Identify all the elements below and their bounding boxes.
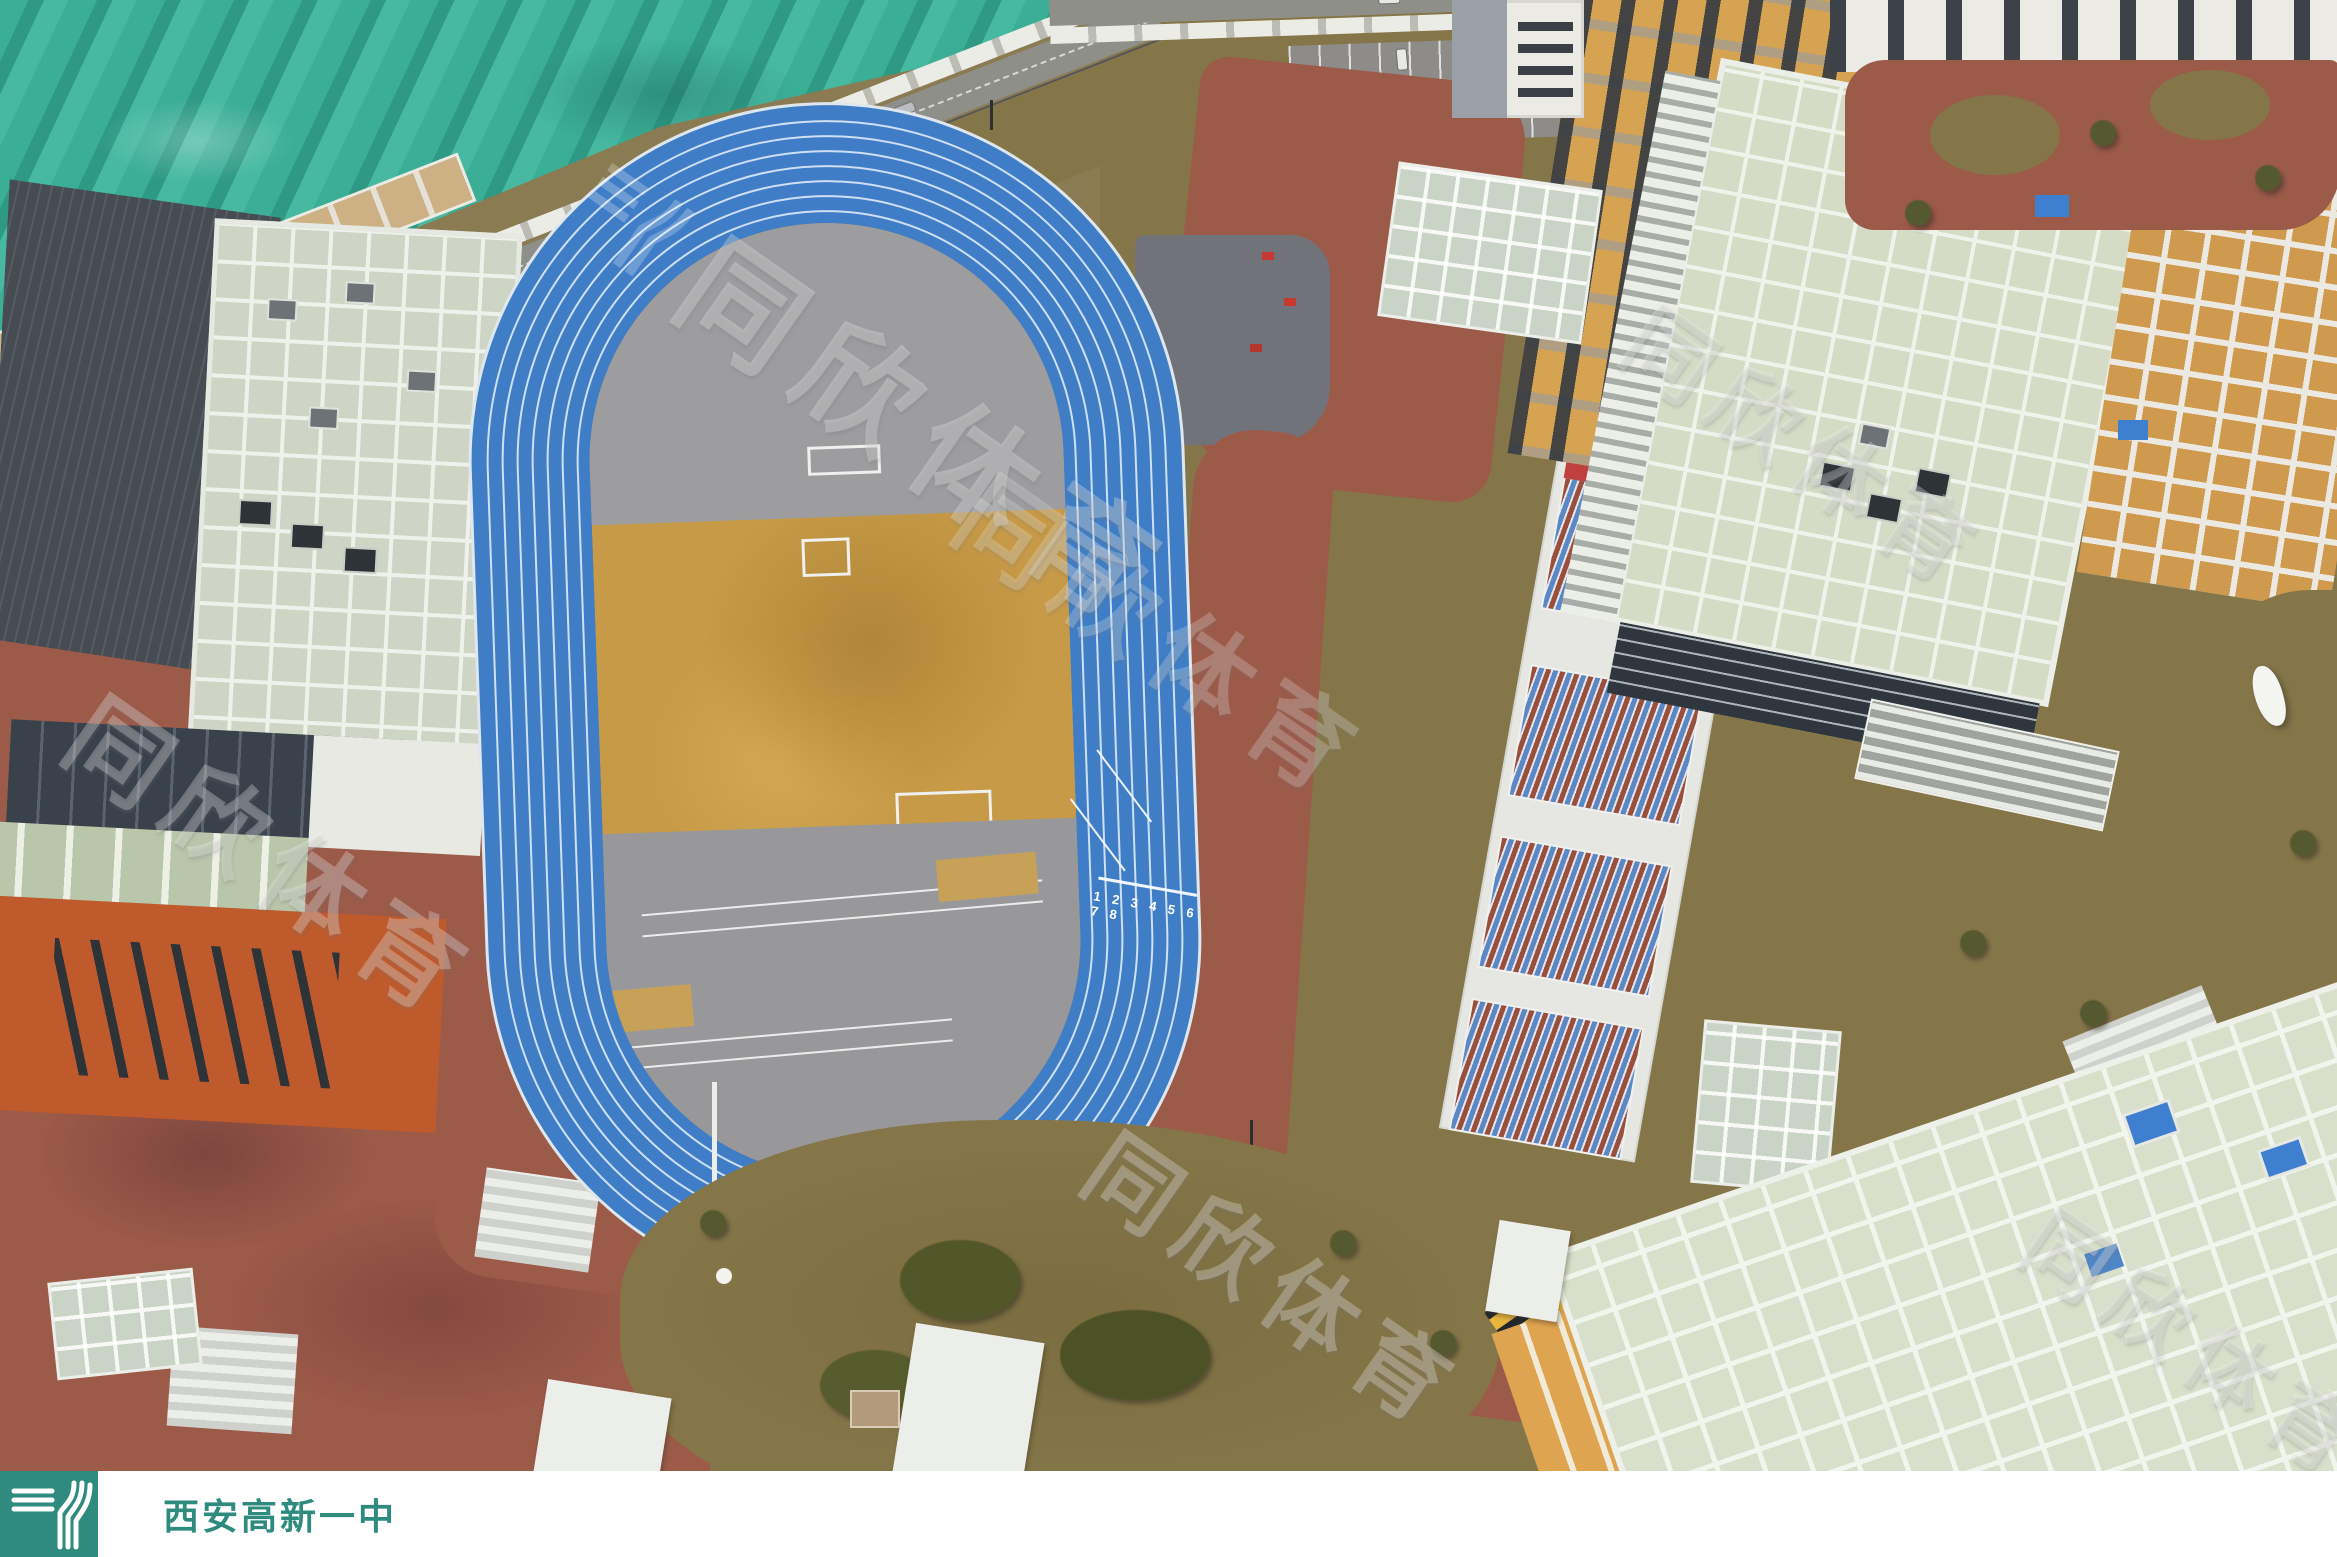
rooftop-ac-unit: [408, 371, 435, 390]
long-jump-sand-pit: [935, 852, 1039, 903]
tree: [700, 1210, 726, 1236]
small-white-roof: [1485, 1220, 1571, 1322]
rooftop-ac-unit: [268, 300, 295, 319]
tongxin-logo: [0, 1471, 98, 1557]
tree: [2080, 1000, 2106, 1026]
runway-line: [643, 900, 1043, 937]
grass-island: [2150, 70, 2270, 140]
red-flag: [1262, 252, 1274, 260]
shrub-cluster: [900, 1240, 1020, 1320]
school-name: 西安高新一中: [163, 1488, 397, 1540]
rooftop-equipment-blue: [2126, 1102, 2177, 1145]
picnic-table: [852, 1392, 898, 1426]
shrub-cluster: [1060, 1310, 1210, 1400]
screenshot: 1 2 3 4 5 6 7 8: [0, 0, 2337, 1557]
aerial-photo: 1 2 3 4 5 6 7 8: [0, 0, 2337, 1471]
blue-tarp: [2118, 420, 2148, 440]
rooftop-ac-unit: [240, 500, 271, 524]
rooftop-ac-unit: [311, 409, 338, 428]
grandstand-canopy: [1479, 838, 1671, 996]
rooftop-ac-unit: [292, 524, 323, 548]
globe-light: [716, 1268, 732, 1284]
white-pavilion: [890, 1323, 1045, 1471]
long-jump-sand-pit: [610, 984, 695, 1033]
grass-island: [1930, 95, 2060, 175]
caption-bar: 西安高新一中: [0, 1471, 2337, 1557]
rooftop-ac-unit: [347, 283, 374, 302]
tree: [2290, 830, 2316, 856]
small-white-building: [1452, 0, 1584, 118]
windows: [1518, 21, 1573, 97]
blue-tarp: [2035, 195, 2069, 217]
rooftop-ac-unit: [345, 548, 376, 572]
red-flag: [1250, 344, 1262, 352]
soccer-goal: [801, 537, 851, 577]
tree: [2090, 120, 2116, 146]
parked-car: [1397, 49, 1408, 70]
glass-canopy: [1381, 165, 1600, 341]
tree: [1960, 930, 1986, 956]
red-flag: [1284, 298, 1296, 306]
glass-canopy: [51, 1271, 200, 1377]
tongxin-logo-icon: [0, 1471, 98, 1557]
roof-band: [1452, 0, 1507, 118]
tree: [2255, 165, 2281, 191]
tree: [1905, 200, 1931, 226]
rooftop-equipment-blue: [2260, 1140, 2306, 1178]
